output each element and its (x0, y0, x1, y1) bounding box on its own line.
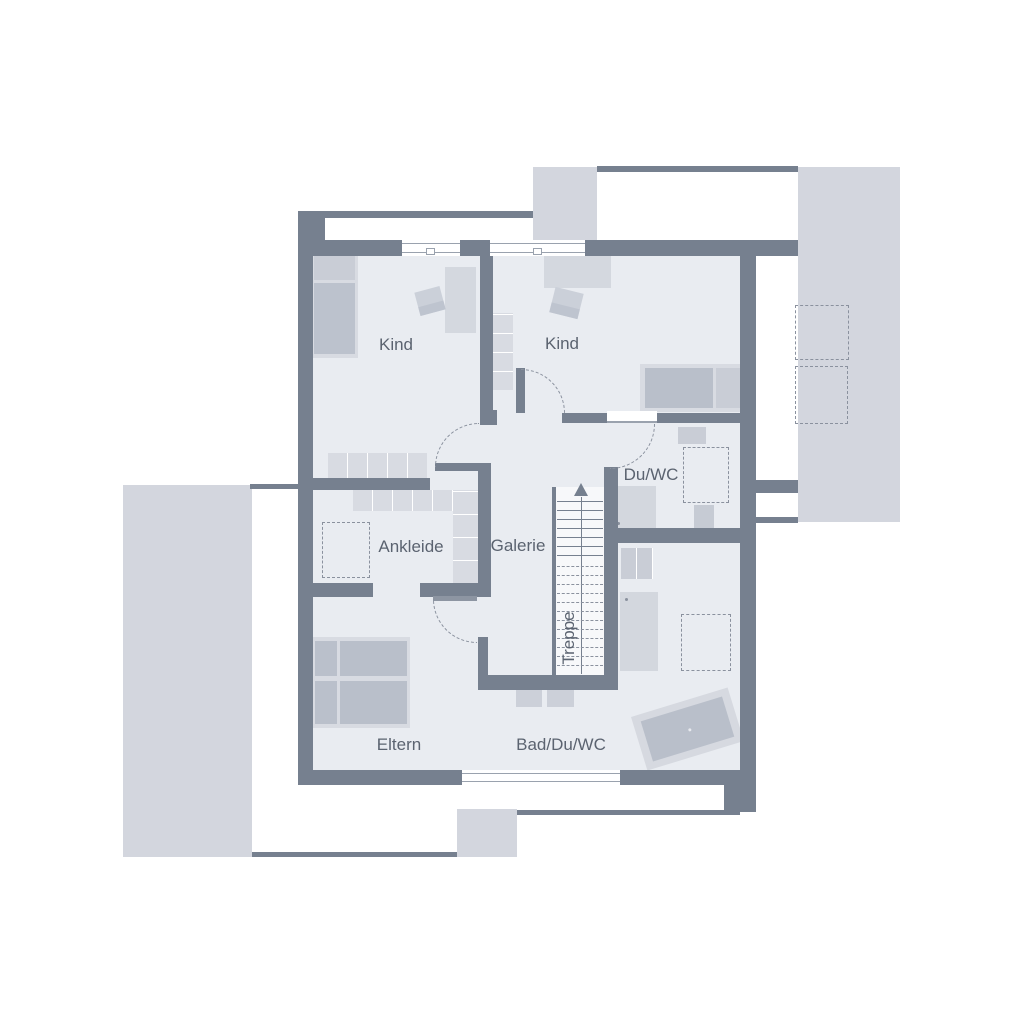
furniture-dashed-bad (681, 614, 731, 671)
rug-kind2 (544, 255, 611, 288)
stair-step (557, 602, 603, 603)
desk-kind1 (445, 267, 476, 333)
stair-step (557, 528, 603, 529)
roof-dashed-outline-2 (795, 366, 848, 424)
wall-corner-top-left (298, 211, 325, 240)
balcony-wall-stub-lower (756, 517, 798, 523)
room-label-kind1: Kind (379, 335, 413, 355)
stair-direction-arrow (574, 483, 588, 496)
wall-kind2-bottom-left (562, 413, 607, 423)
room-label-eltern: Eltern (377, 735, 421, 755)
room-label-ankleide: Ankleide (378, 537, 443, 557)
eave-line-bottom-left (252, 852, 457, 857)
bed-eltern-blanket-bottom (340, 681, 407, 724)
stair-step (557, 593, 603, 594)
room-label-kind2: Kind (545, 334, 579, 354)
wall-galerie-bottom (478, 675, 618, 690)
stair-step (557, 546, 603, 547)
stair-step (557, 537, 603, 538)
chimney-block (533, 167, 597, 240)
wall-stub-eltern (478, 637, 488, 677)
wall-stairwell-right (604, 467, 618, 677)
shower-bad (620, 592, 658, 671)
stair-step (557, 501, 603, 502)
shelf-kind2 (493, 313, 513, 390)
roof-block-bottom (457, 809, 517, 857)
wall-left (298, 211, 313, 785)
window-kind2 (490, 240, 585, 256)
washbasin-bad (621, 548, 653, 579)
shower-dashed-duwc (683, 447, 729, 503)
bed-kind1-pillow (314, 253, 355, 280)
stair-step (557, 510, 603, 511)
duct-left (516, 690, 542, 707)
wall-kind1-ankleide (313, 478, 430, 490)
roof-dashed-outline-1 (795, 305, 849, 360)
washbasin-duwc (678, 427, 706, 444)
floor-plan: Kind Kind Du/WC Ankleide Galerie Treppe … (0, 0, 1024, 1024)
room-label-treppe: Treppe (559, 611, 579, 664)
stair-step (557, 566, 603, 567)
toilet-duwc (694, 505, 714, 529)
bed-kind1-blanket (314, 283, 355, 354)
eave-line-left-connector (250, 484, 298, 489)
wall-ankleide-bottom-left (313, 583, 373, 597)
bed-kind2-pillow (716, 368, 741, 408)
room-label-galerie: Galerie (491, 536, 546, 556)
furniture-dashed-ankleide (322, 522, 370, 578)
stair-step (557, 665, 603, 666)
wall-divider-lower (478, 463, 491, 597)
door-leaf-duwc (607, 411, 657, 423)
wardrobe-ankleide-top (353, 490, 453, 511)
stair-step (557, 575, 603, 576)
wall-right (740, 240, 756, 785)
room-label-bad: Bad/Du/WC (516, 735, 606, 755)
wall-ankleide-bottom-right (420, 583, 478, 597)
bed-eltern-pillow-bottom (315, 681, 337, 724)
stair-side-line (552, 487, 556, 677)
bed-kind2-blanket (645, 368, 713, 408)
wall-kind2-bottom-right (657, 413, 740, 423)
window-bottom (462, 770, 620, 785)
room-label-duwc: Du/WC (624, 465, 679, 485)
roof-block-left (123, 485, 252, 857)
stair-step (557, 584, 603, 585)
eave-line-top-left (322, 211, 533, 218)
duct-right (547, 690, 574, 707)
window-kind1 (402, 240, 460, 256)
bed-eltern-blanket-top (340, 641, 407, 676)
wall-duwc-bottom (604, 528, 740, 543)
wardrobe-ankleide-right (453, 490, 478, 583)
stair-step (557, 519, 603, 520)
wall-divider-kind-upper (480, 240, 493, 425)
wardrobe-kind1 (328, 453, 427, 478)
wall-divider-nub (480, 410, 497, 425)
eave-line-bottom-right (517, 810, 740, 815)
bed-eltern-pillow-top (315, 641, 337, 676)
stair-step (557, 555, 603, 556)
balcony-wall-stub-upper (756, 480, 798, 493)
drain-dot-bad (625, 598, 628, 601)
eave-line-top-right (597, 166, 798, 172)
